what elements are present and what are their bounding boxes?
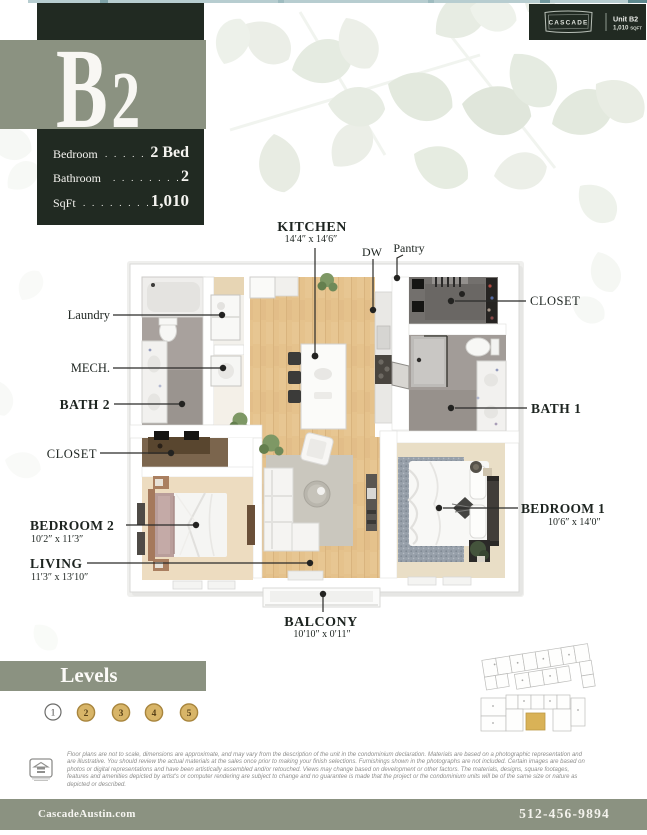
svg-text:DW: DW [362, 245, 383, 259]
svg-text:MECH.: MECH. [71, 361, 110, 375]
svg-text:BEDROOM 2: BEDROOM 2 [30, 518, 114, 533]
svg-text:3: 3 [119, 709, 124, 719]
svg-text:11′3″ x 13′10″: 11′3″ x 13′10″ [31, 572, 88, 583]
svg-text:2: 2 [84, 709, 89, 719]
svg-text:14′4″ x 14′6″: 14′4″ x 14′6″ [285, 234, 338, 245]
svg-text:BEDROOM 1: BEDROOM 1 [521, 501, 605, 516]
svg-text:10′6″ x 14′0″: 10′6″ x 14′0″ [548, 517, 601, 528]
svg-text:BATH 1: BATH 1 [531, 401, 581, 416]
svg-text:BALCONY: BALCONY [284, 615, 358, 630]
svg-text:BATH 2: BATH 2 [60, 397, 110, 412]
svg-text:CLOSET: CLOSET [530, 294, 580, 308]
svg-text:5: 5 [187, 709, 192, 719]
svg-text:KITCHEN: KITCHEN [277, 220, 347, 235]
svg-text:Laundry: Laundry [68, 308, 111, 322]
svg-text:LIVING: LIVING [30, 556, 83, 571]
svg-text:10′2″ x 11′3″: 10′2″ x 11′3″ [31, 534, 83, 545]
svg-text:CLOSET: CLOSET [47, 447, 97, 461]
svg-text:10′10″ x 0′11″: 10′10″ x 0′11″ [293, 629, 350, 640]
svg-text:1: 1 [51, 709, 56, 719]
svg-text:Pantry: Pantry [393, 241, 424, 255]
svg-text:4: 4 [152, 709, 157, 719]
